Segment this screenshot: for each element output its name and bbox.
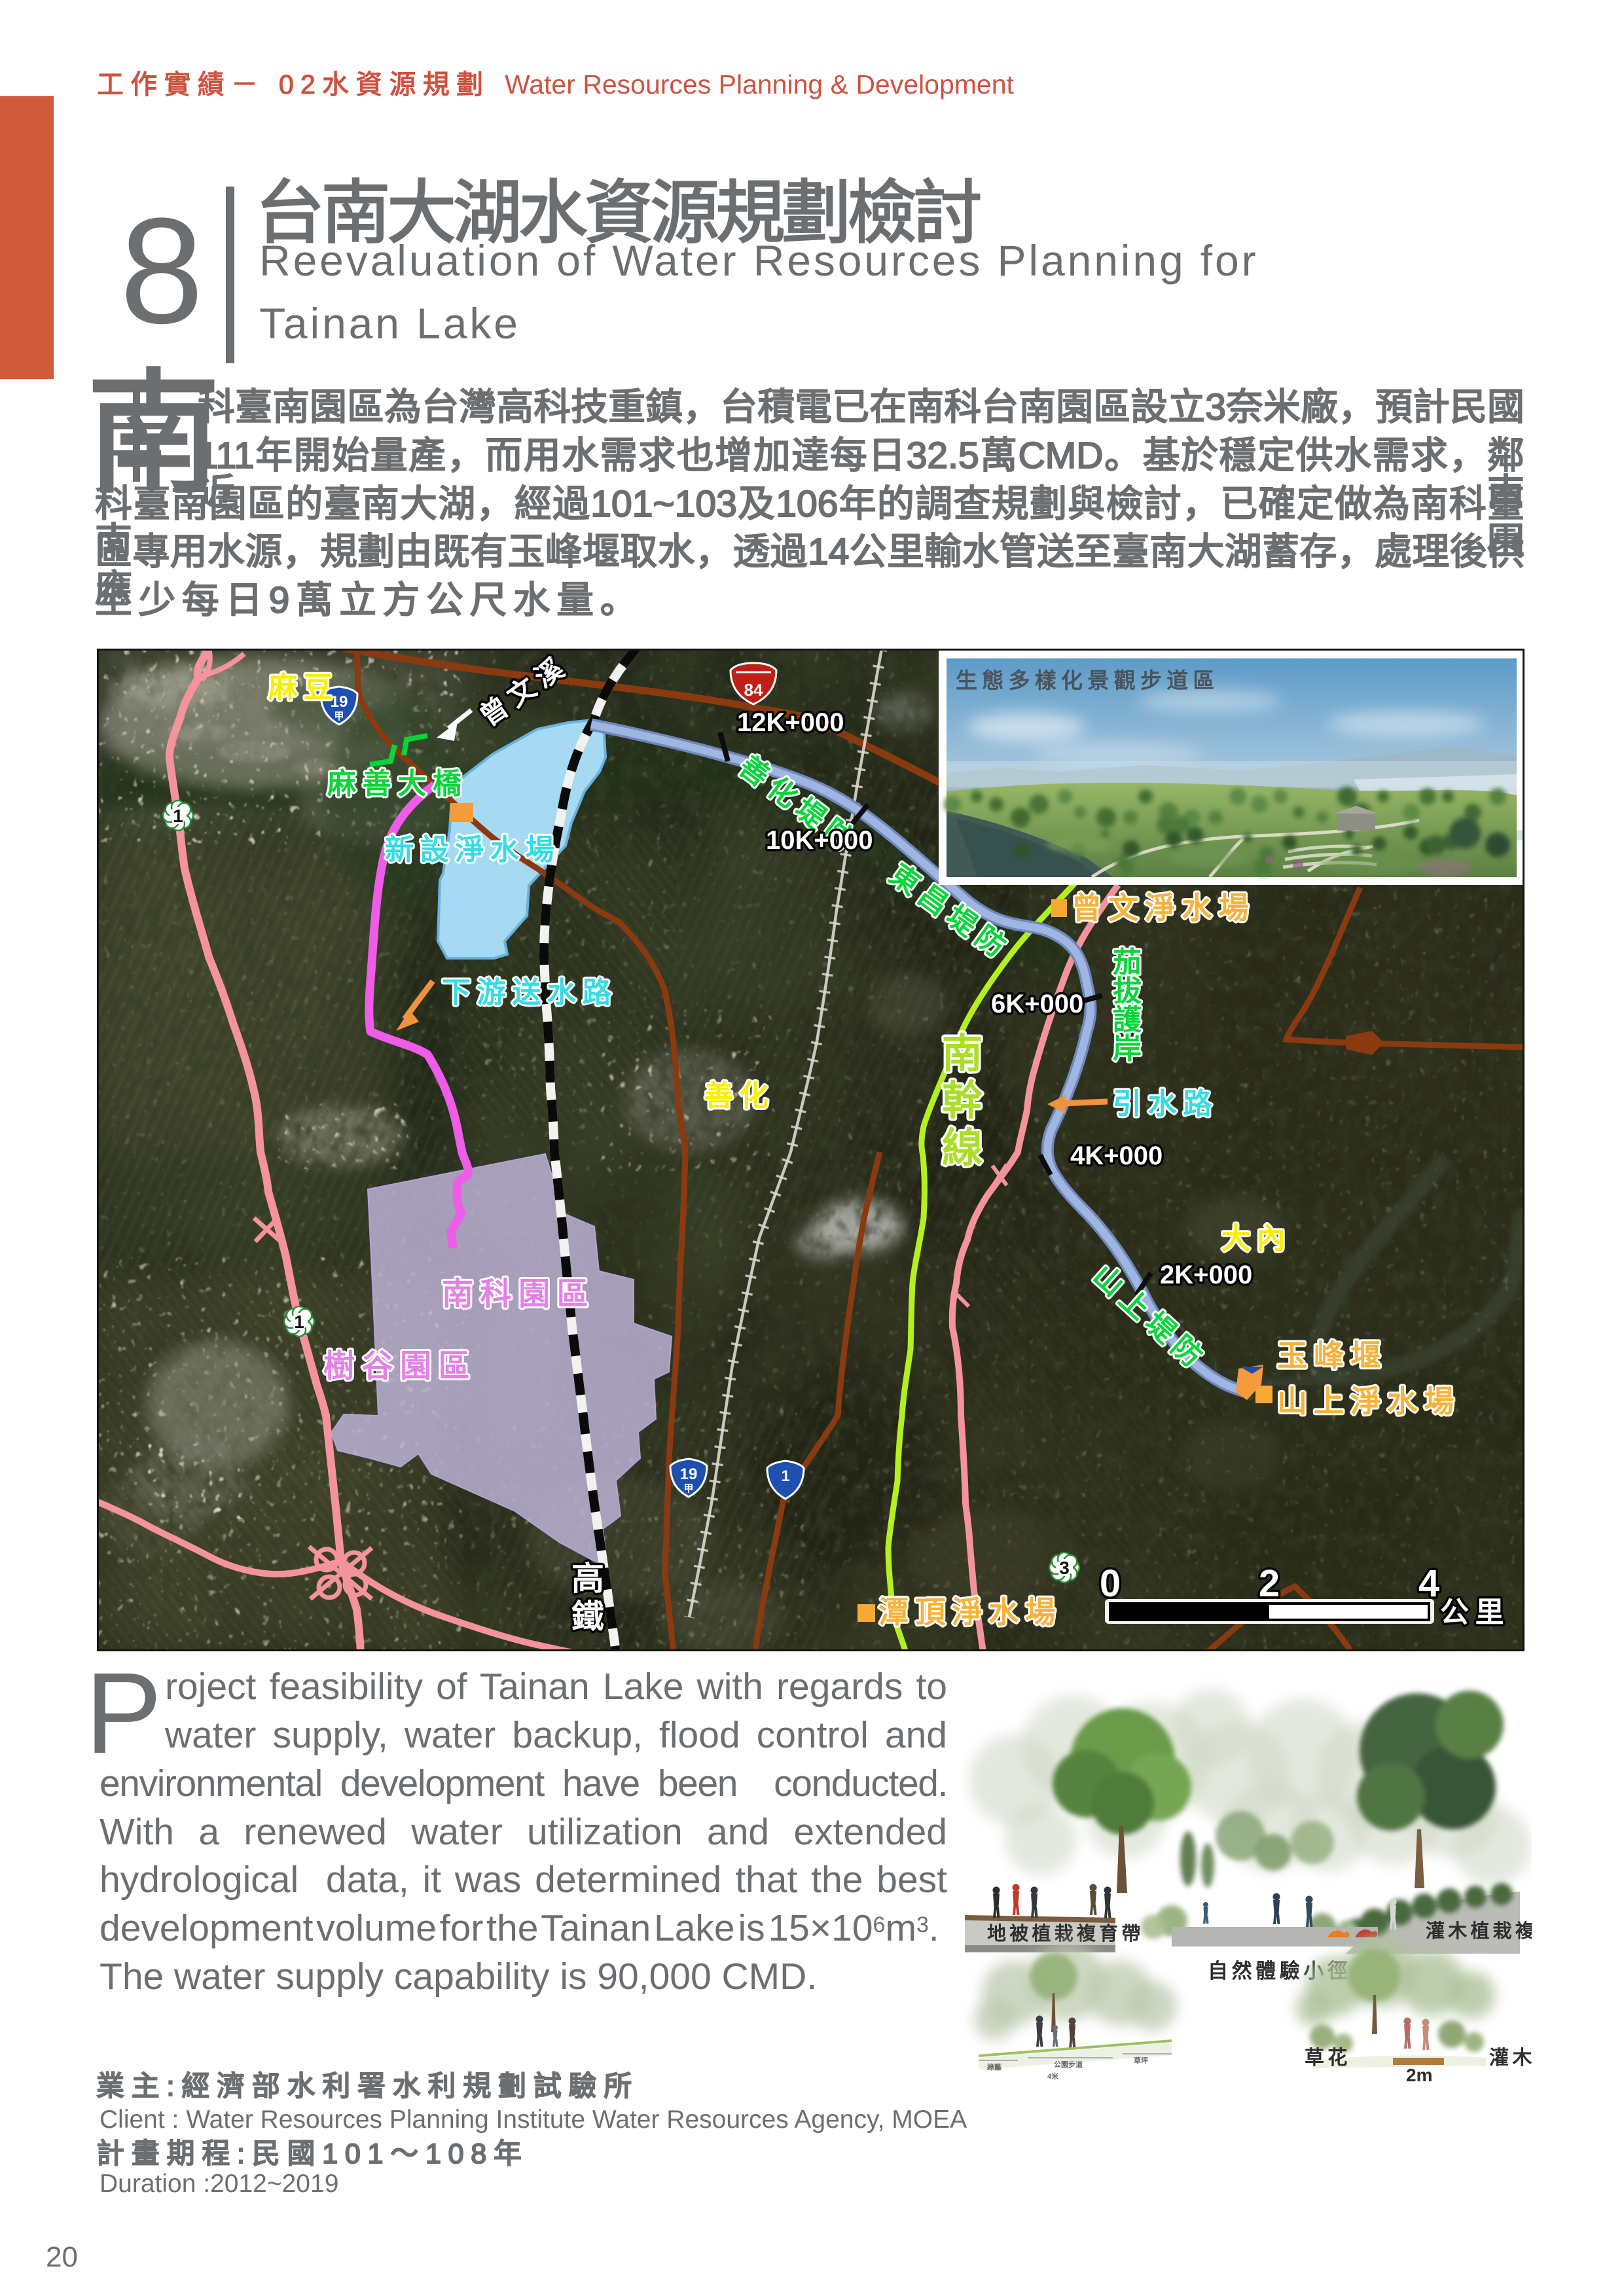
svg-text:12K+000: 12K+000 bbox=[737, 708, 844, 737]
svg-text:新設淨水場: 新設淨水場 bbox=[385, 834, 560, 866]
svg-text:2m: 2m bbox=[1406, 2065, 1432, 2085]
svg-text:麻豆: 麻豆 bbox=[268, 672, 338, 704]
svg-text:草坪: 草坪 bbox=[1134, 2056, 1148, 2065]
svg-text:曾文淨水場: 曾文淨水場 bbox=[1072, 891, 1255, 925]
svg-text:4米: 4米 bbox=[1047, 2072, 1059, 2081]
svg-text:樹谷園區: 樹谷園區 bbox=[323, 1349, 477, 1384]
svg-text:甲: 甲 bbox=[334, 711, 344, 722]
svg-text:草花: 草花 bbox=[1305, 2047, 1351, 2069]
svg-text:山上淨水場: 山上淨水場 bbox=[1277, 1384, 1461, 1418]
svg-text:鐵: 鐵 bbox=[571, 1598, 604, 1635]
svg-text:19: 19 bbox=[680, 1465, 698, 1483]
svg-text:公里: 公里 bbox=[1440, 1596, 1510, 1628]
svg-text:3: 3 bbox=[1059, 1558, 1070, 1578]
svg-text:引水路: 引水路 bbox=[1113, 1088, 1218, 1120]
svg-text:善化: 善化 bbox=[704, 1080, 774, 1112]
svg-text:茄: 茄 bbox=[1113, 946, 1142, 978]
svg-text:綠籬: 綠籬 bbox=[987, 2062, 1001, 2072]
svg-text:1: 1 bbox=[781, 1467, 789, 1485]
svg-text:6K+000: 6K+000 bbox=[991, 990, 1083, 1018]
svg-text:1: 1 bbox=[173, 806, 183, 826]
svg-text:南科園區: 南科園區 bbox=[442, 1277, 595, 1312]
svg-text:10K+000: 10K+000 bbox=[766, 826, 873, 855]
svg-text:生態多樣化景觀步道區: 生態多樣化景觀步道區 bbox=[956, 668, 1219, 692]
svg-text:灌木: 灌木 bbox=[1489, 2047, 1532, 2069]
svg-text:公園步道: 公園步道 bbox=[1054, 2060, 1083, 2069]
svg-text:拔: 拔 bbox=[1113, 975, 1142, 1007]
svg-text:幹: 幹 bbox=[942, 1078, 983, 1124]
svg-text:84: 84 bbox=[744, 680, 763, 700]
svg-text:灌木植栽複育帶: 灌木植栽複育帶 bbox=[1426, 1920, 1532, 1942]
svg-text:護: 護 bbox=[1113, 1004, 1142, 1036]
svg-text:線: 線 bbox=[942, 1126, 983, 1171]
svg-text:潭頂淨水場: 潭頂淨水場 bbox=[878, 1595, 1062, 1629]
svg-text:麻善大橋: 麻善大橋 bbox=[327, 768, 468, 800]
svg-text:甲: 甲 bbox=[683, 1483, 693, 1494]
svg-text:南: 南 bbox=[942, 1031, 983, 1077]
svg-text:地被植栽複育帶: 地被植栽複育帶 bbox=[987, 1922, 1144, 1945]
svg-text:岸: 岸 bbox=[1113, 1033, 1142, 1065]
svg-text:4: 4 bbox=[1418, 1562, 1439, 1605]
svg-text:2K+000: 2K+000 bbox=[1160, 1261, 1252, 1289]
svg-text:大內: 大內 bbox=[1221, 1223, 1291, 1255]
svg-text:下游送水路: 下游送水路 bbox=[442, 977, 617, 1009]
svg-text:4K+000: 4K+000 bbox=[1070, 1141, 1163, 1170]
svg-text:1: 1 bbox=[294, 1312, 304, 1332]
svg-text:高: 高 bbox=[571, 1560, 604, 1597]
svg-text:2: 2 bbox=[1259, 1562, 1280, 1605]
svg-text:0: 0 bbox=[1100, 1562, 1121, 1605]
svg-text:玉峰堰: 玉峰堰 bbox=[1277, 1338, 1387, 1372]
